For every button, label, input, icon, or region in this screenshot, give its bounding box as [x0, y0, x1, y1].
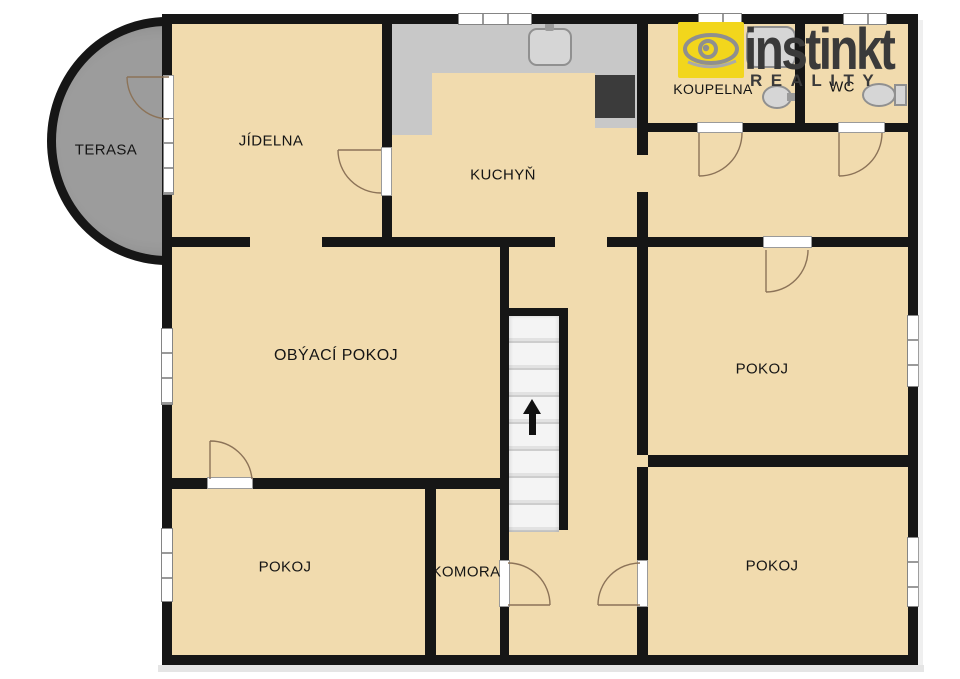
- kitchen-sink: [528, 28, 572, 66]
- door-pokoj-bottom-left: [207, 477, 253, 489]
- wall-kitchen-right-upper: [637, 24, 648, 155]
- kitchen-counter-left: [392, 73, 432, 135]
- stairs-up-arrow-stem: [529, 412, 536, 435]
- wall-stairs-left-lower: [500, 607, 509, 655]
- wall-mid-seg1: [172, 237, 250, 247]
- stove: [595, 75, 635, 118]
- logo-brand-subtitle: REALITY: [750, 71, 882, 91]
- room-label-jidelna: JÍDELNA: [239, 133, 304, 150]
- door-terrace: [163, 75, 174, 120]
- floor-plan: TERASA JÍDELNA KUCHYŇ KOUPELNA WC OBÝACÍ…: [0, 0, 960, 679]
- wall-living-bottom-a: [172, 478, 207, 489]
- door-jidelna: [381, 147, 392, 196]
- room-label-kuchyn: KUCHYŇ: [470, 167, 536, 184]
- room-label-komora: KOMORA: [431, 564, 500, 581]
- wall-central-c: [637, 607, 648, 655]
- kitchen-counter-top: [392, 24, 637, 73]
- wall-central-a: [637, 247, 648, 455]
- wall-stairs-left-upper: [500, 247, 509, 560]
- faucet-icon: [545, 23, 554, 31]
- wall-koupelna-bottom-b: [743, 123, 838, 132]
- eye-icon: [678, 22, 744, 78]
- wall-kitchen-right-lower: [637, 192, 648, 247]
- door-wc: [838, 122, 885, 133]
- window-kitchen: [458, 13, 532, 25]
- wall-stairs-right: [559, 308, 568, 530]
- wall-mid-seg2: [322, 237, 555, 247]
- room-label-obyvaci-pokoj: OBÝACÍ POKOJ: [274, 347, 398, 365]
- wall-central-b: [637, 467, 648, 560]
- wall-mid-seg4: [812, 237, 908, 247]
- room-label-pokoj-bottom-left: POKOJ: [259, 559, 312, 576]
- shadow-right: [918, 20, 923, 665]
- door-pokoj-bottom-right: [637, 560, 648, 607]
- window-jidelna-terrace: [163, 118, 174, 195]
- outer-wall-bottom: [162, 655, 918, 665]
- wall-stairs-top: [509, 308, 559, 316]
- logo-yellow-square: [678, 22, 744, 78]
- window-pokoj-bottom-left: [161, 528, 173, 602]
- wall-jidelna-kuchyn-upper: [382, 24, 392, 148]
- door-pokoj-top-right: [763, 236, 812, 248]
- logo-brand-name: instinkt: [744, 24, 893, 76]
- shadow-bottom: [158, 665, 924, 672]
- window-living-room: [161, 328, 173, 405]
- wall-koupelna-bottom-a: [648, 123, 697, 132]
- sink-tap-icon: [787, 93, 795, 101]
- wall-koupelna-bottom-c: [885, 123, 908, 132]
- door-koupelna: [697, 122, 743, 133]
- room-label-pokoj-bottom-right: POKOJ: [746, 558, 799, 575]
- room-label-koupelna: KOUPELNA: [673, 81, 752, 97]
- wall-pokoj-divider-right: [648, 455, 908, 467]
- room-label-terasa: TERASA: [75, 142, 137, 159]
- wall-living-bottom-b: [253, 478, 508, 489]
- door-komora: [499, 560, 510, 607]
- room-label-pokoj-top-right: POKOJ: [736, 361, 789, 378]
- wall-mid-seg3: [607, 237, 763, 247]
